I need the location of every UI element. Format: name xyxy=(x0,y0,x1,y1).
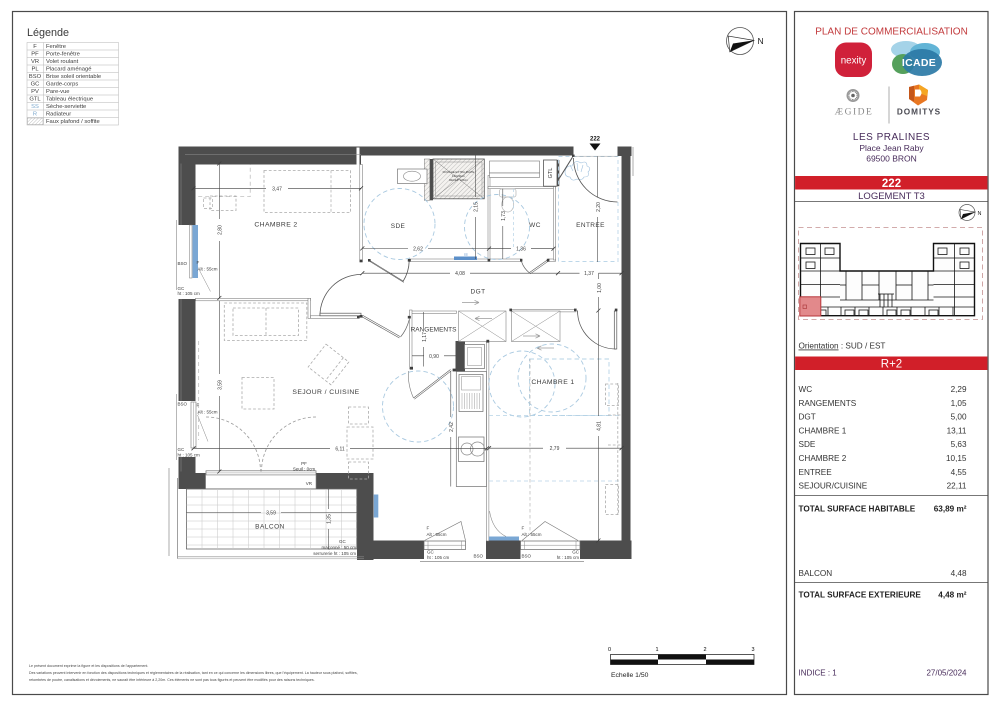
svg-text:BSO: BSO xyxy=(29,74,42,80)
svg-text:6,11: 6,11 xyxy=(335,446,345,452)
svg-text:RECEP 120cm: RECEP 120cm xyxy=(449,178,468,182)
svg-text:5,00: 5,00 xyxy=(951,413,967,422)
svg-text:GC: GC xyxy=(339,539,347,544)
svg-text:22,11: 22,11 xyxy=(947,482,967,491)
svg-text:Porte-fenêtre: Porte-fenêtre xyxy=(46,52,80,58)
svg-text:VR: VR xyxy=(306,481,313,486)
svg-text:1,00: 1,00 xyxy=(597,283,603,293)
svg-text:BALCON: BALCON xyxy=(255,524,285,531)
svg-text:RANGEMENTS: RANGEMENTS xyxy=(799,399,857,408)
svg-text:ht : 105 cm: ht : 105 cm xyxy=(557,555,580,560)
svg-text:CHAMBRE 2: CHAMBRE 2 xyxy=(254,222,297,229)
svg-text:Alt : 55cm: Alt : 55cm xyxy=(198,410,218,415)
svg-text:10,15: 10,15 xyxy=(946,454,967,463)
svg-text:BSO: BSO xyxy=(474,554,484,559)
svg-text:F: F xyxy=(197,260,200,265)
svg-text:69500 BRON: 69500 BRON xyxy=(866,154,917,164)
svg-text:nexity: nexity xyxy=(841,56,867,67)
svg-text:DGT: DGT xyxy=(471,289,486,296)
svg-text:2,80: 2,80 xyxy=(218,225,224,235)
svg-text:2,20: 2,20 xyxy=(596,202,602,212)
svg-text:13,11: 13,11 xyxy=(947,426,967,435)
svg-text:GTL: GTL xyxy=(548,168,554,179)
svg-text:Sèche-serviette: Sèche-serviette xyxy=(46,104,86,110)
svg-text:DOMITYS: DOMITYS xyxy=(897,108,941,117)
svg-text:2,42: 2,42 xyxy=(449,422,455,432)
svg-text:3,59: 3,59 xyxy=(266,511,276,517)
svg-text:Le présent document exprime la: Le présent document exprime la figure et… xyxy=(29,664,148,668)
svg-text:4,48: 4,48 xyxy=(951,569,967,578)
svg-text:2,62: 2,62 xyxy=(413,246,423,252)
svg-text:Alt : 55cm: Alt : 55cm xyxy=(427,532,447,537)
svg-text:GTL: GTL xyxy=(29,97,41,103)
svg-text:Tableau électrique: Tableau électrique xyxy=(46,97,93,103)
svg-text:ht : 105 cm: ht : 105 cm xyxy=(427,555,450,560)
svg-text:Seuil : 0cm: Seuil : 0cm xyxy=(293,467,316,472)
svg-text:Faux plafond / soffite: Faux plafond / soffite xyxy=(46,119,100,125)
svg-text:GC: GC xyxy=(178,447,186,452)
svg-text:Place Jean Raby: Place Jean Raby xyxy=(859,143,924,153)
svg-text:SDE: SDE xyxy=(391,223,406,230)
svg-text:ENTREE: ENTREE xyxy=(799,468,833,477)
svg-text:3: 3 xyxy=(752,647,755,653)
svg-text:retombées de poutre, canalisat: retombées de poutre, canalisations et dé… xyxy=(29,678,315,682)
svg-text:Des variations peuvent interve: Des variations peuvent intervenir en fon… xyxy=(29,671,358,675)
svg-text:4,81: 4,81 xyxy=(597,421,603,431)
svg-text:1,05: 1,05 xyxy=(951,399,967,408)
svg-text:GC: GC xyxy=(572,550,580,555)
svg-text:CHAMBRE 2: CHAMBRE 2 xyxy=(799,454,847,463)
svg-text:1,73: 1,73 xyxy=(501,211,507,221)
svg-text:TOTAL SURFACE EXTERIEURE: TOTAL SURFACE EXTERIEURE xyxy=(799,591,922,600)
svg-text:PF: PF xyxy=(301,461,307,466)
svg-text:Volet roulant: Volet roulant xyxy=(46,59,79,65)
svg-text:Brise soleil orientable: Brise soleil orientable xyxy=(46,74,101,80)
svg-text:Alt : 55cm: Alt : 55cm xyxy=(198,267,218,272)
svg-text:ENTREE: ENTREE xyxy=(576,222,605,229)
svg-text:GC: GC xyxy=(427,550,435,555)
svg-text:27/05/2024: 27/05/2024 xyxy=(926,669,967,678)
svg-text:VR: VR xyxy=(31,59,39,65)
svg-text:Fenêtre: Fenêtre xyxy=(46,44,66,50)
svg-text:0,90: 0,90 xyxy=(429,354,439,360)
svg-text:PL: PL xyxy=(31,67,39,73)
svg-text:RANGEMENTS: RANGEMENTS xyxy=(411,327,458,334)
svg-text:5,63: 5,63 xyxy=(951,440,967,449)
svg-text:N: N xyxy=(758,36,764,46)
svg-text:WC: WC xyxy=(529,222,541,229)
svg-text:Placard aménagé: Placard aménagé xyxy=(46,67,91,73)
svg-text:LES PRALINES: LES PRALINES xyxy=(853,132,930,143)
svg-text:ss: ss xyxy=(464,253,468,257)
svg-text:F: F xyxy=(522,526,525,531)
svg-text:63,89 m²: 63,89 m² xyxy=(934,505,967,514)
svg-text:LOGEMENT T3: LOGEMENT T3 xyxy=(858,191,925,202)
svg-text:4,08: 4,08 xyxy=(455,271,465,277)
svg-text:1,35: 1,35 xyxy=(327,514,333,524)
svg-text:TOTAL SURFACE HABITABLE: TOTAL SURFACE HABITABLE xyxy=(799,505,916,514)
svg-text:4,55: 4,55 xyxy=(951,468,967,477)
svg-text:DGT: DGT xyxy=(799,413,816,422)
svg-text:Garde-corps: Garde-corps xyxy=(46,82,78,88)
svg-text:CHAMBRE 1: CHAMBRE 1 xyxy=(531,379,574,386)
svg-text:F: F xyxy=(33,44,37,50)
svg-text:ÆGIDE: ÆGIDE xyxy=(835,108,874,118)
svg-text:PV: PV xyxy=(31,89,39,95)
svg-text:BSO: BSO xyxy=(522,554,532,559)
svg-text:ICADE: ICADE xyxy=(902,57,936,69)
svg-text:maçonné : 50 cm: maçonné : 50 cm xyxy=(321,545,356,550)
svg-text:222: 222 xyxy=(882,178,901,190)
svg-text:2,79: 2,79 xyxy=(550,446,560,452)
svg-text:R+2: R+2 xyxy=(881,359,902,371)
svg-text:1: 1 xyxy=(656,647,659,653)
svg-text:PLAN DE COMMERCIALISATION: PLAN DE COMMERCIALISATION xyxy=(815,27,968,38)
svg-text:ht : 105 cm: ht : 105 cm xyxy=(178,291,201,296)
svg-text:F: F xyxy=(197,403,200,408)
svg-text:SDE: SDE xyxy=(799,440,816,449)
svg-text:4,48 m²: 4,48 m² xyxy=(938,591,966,600)
svg-text:BSO: BSO xyxy=(178,261,188,266)
svg-text:SEJOUR / CUISINE: SEJOUR / CUISINE xyxy=(292,389,359,396)
svg-text:2,29: 2,29 xyxy=(951,385,967,394)
svg-text:BALCON: BALCON xyxy=(799,569,833,578)
svg-text:Radiateur: Radiateur xyxy=(46,112,71,118)
svg-text:GC: GC xyxy=(31,82,40,88)
svg-text:1,36: 1,36 xyxy=(516,247,526,253)
svg-text:ht : 105 cm: ht : 105 cm xyxy=(178,453,201,458)
svg-text:1,37: 1,37 xyxy=(584,271,594,277)
svg-text:WC: WC xyxy=(799,385,813,394)
svg-text:SS: SS xyxy=(31,104,39,110)
svg-text:Pare-vue: Pare-vue xyxy=(46,89,70,95)
svg-text:F: F xyxy=(427,526,430,531)
svg-text:SEJOUR/CUISINE: SEJOUR/CUISINE xyxy=(799,482,868,491)
svg-text:Légende: Légende xyxy=(27,27,69,39)
svg-text:3,59: 3,59 xyxy=(218,380,224,390)
svg-text:2,15: 2,15 xyxy=(474,202,480,212)
svg-text:serrurerie ht : 105 cm: serrurerie ht : 105 cm xyxy=(313,551,356,556)
svg-text:BSO: BSO xyxy=(178,402,188,407)
svg-text:CHAMBRE 1: CHAMBRE 1 xyxy=(799,426,847,435)
svg-text:Orientation : SUD / EST: Orientation : SUD / EST xyxy=(799,342,886,351)
svg-text:N: N xyxy=(978,211,982,217)
svg-text:0: 0 xyxy=(608,647,611,653)
svg-text:Alt : 55cm: Alt : 55cm xyxy=(522,532,542,537)
svg-text:3,47: 3,47 xyxy=(272,186,282,192)
svg-text:Echelle 1/50: Echelle 1/50 xyxy=(611,672,649,679)
svg-text:PF: PF xyxy=(31,52,39,58)
svg-text:INDICE : 1: INDICE : 1 xyxy=(799,669,838,678)
svg-text:222: 222 xyxy=(590,137,601,143)
svg-text:2: 2 xyxy=(704,647,707,653)
svg-text:R: R xyxy=(33,112,37,118)
